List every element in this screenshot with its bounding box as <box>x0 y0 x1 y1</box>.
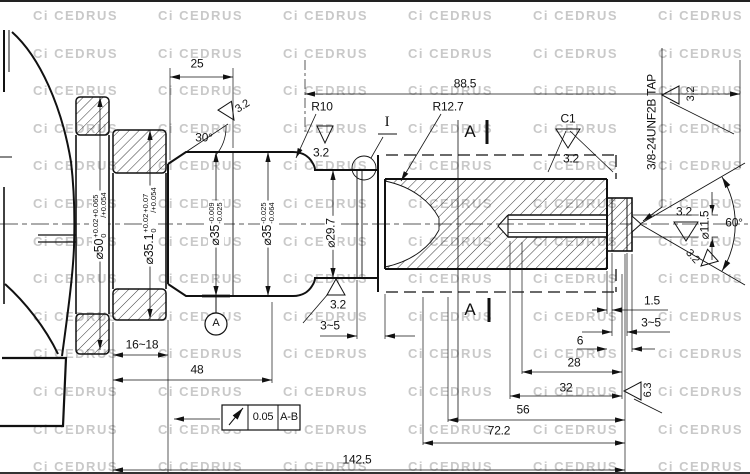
dim-6: 6 <box>577 335 583 348</box>
section-label-a-top: A <box>464 123 475 141</box>
label-c1: C1 <box>561 113 576 126</box>
dia-label-35b: ⌀35-0.025-0.064 <box>260 200 276 247</box>
dim-3-5-mid: 3~5 <box>320 320 340 333</box>
tapped-hole <box>498 215 608 237</box>
sleeve-body <box>378 155 616 292</box>
datum-label-a: A <box>212 318 219 330</box>
dim-142-5: 142.5 <box>342 454 371 467</box>
fcf-datum-refs: A-B <box>280 412 298 424</box>
finish-neck-value: 3.2 <box>330 299 346 312</box>
finish-tap-value: 3.2 <box>686 87 698 102</box>
dim-11-5: ⌀11.5 <box>699 209 712 242</box>
section-label-a-bottom: A <box>464 301 475 319</box>
dim-1-5: 1.5 <box>644 295 660 308</box>
label-r12-7: R12.7 <box>432 101 463 114</box>
dim-30deg: 30° <box>195 132 213 145</box>
dim-48: 48 <box>191 364 204 377</box>
detail-label-i: I <box>385 115 390 131</box>
dim-72-2: 72.2 <box>488 425 511 438</box>
finish-r10-value: 3.2 <box>313 147 329 160</box>
finish-63-value: 6.3 <box>643 383 655 398</box>
label-r10: R10 <box>311 101 332 114</box>
dim-88-5: 88.5 <box>454 78 477 91</box>
dia-label-35-1: ⌀35.1+0.020+0.07/+0.054 <box>142 185 158 266</box>
section-line <box>458 120 489 422</box>
dim-29-7: ⌀29.7 <box>325 216 338 250</box>
finish-c1-value: 3.2 <box>563 153 579 166</box>
dim-3-5-right: 3~5 <box>641 317 661 330</box>
dim-25: 25 <box>191 58 204 71</box>
housing-left <box>0 30 76 426</box>
dia-label-50: ⌀50+0.020+0.065/+0.054 <box>92 190 108 261</box>
dim-28: 28 <box>568 357 581 370</box>
drawing-linework <box>0 2 750 474</box>
engineering-drawing: Ci CEDRUSCi CEDRUSCi CEDRUSCi CEDRUSCi C… <box>0 0 750 474</box>
dim-60deg: 60° <box>725 217 743 230</box>
finish-face-value: 3.2 <box>676 206 692 219</box>
dim-32: 32 <box>560 382 573 395</box>
dia-label-35a: ⌀35-0.009-0.025 <box>208 200 224 247</box>
dim-16-18: 16~18 <box>126 339 159 352</box>
fcf-tolerance: 0.05 <box>253 412 274 424</box>
end-boss <box>607 198 641 251</box>
detail-circle <box>352 134 397 180</box>
dim-56: 56 <box>517 404 530 417</box>
hub <box>113 130 166 320</box>
label-tap-thread: 3/8-24UNF2B TAP <box>646 74 659 170</box>
